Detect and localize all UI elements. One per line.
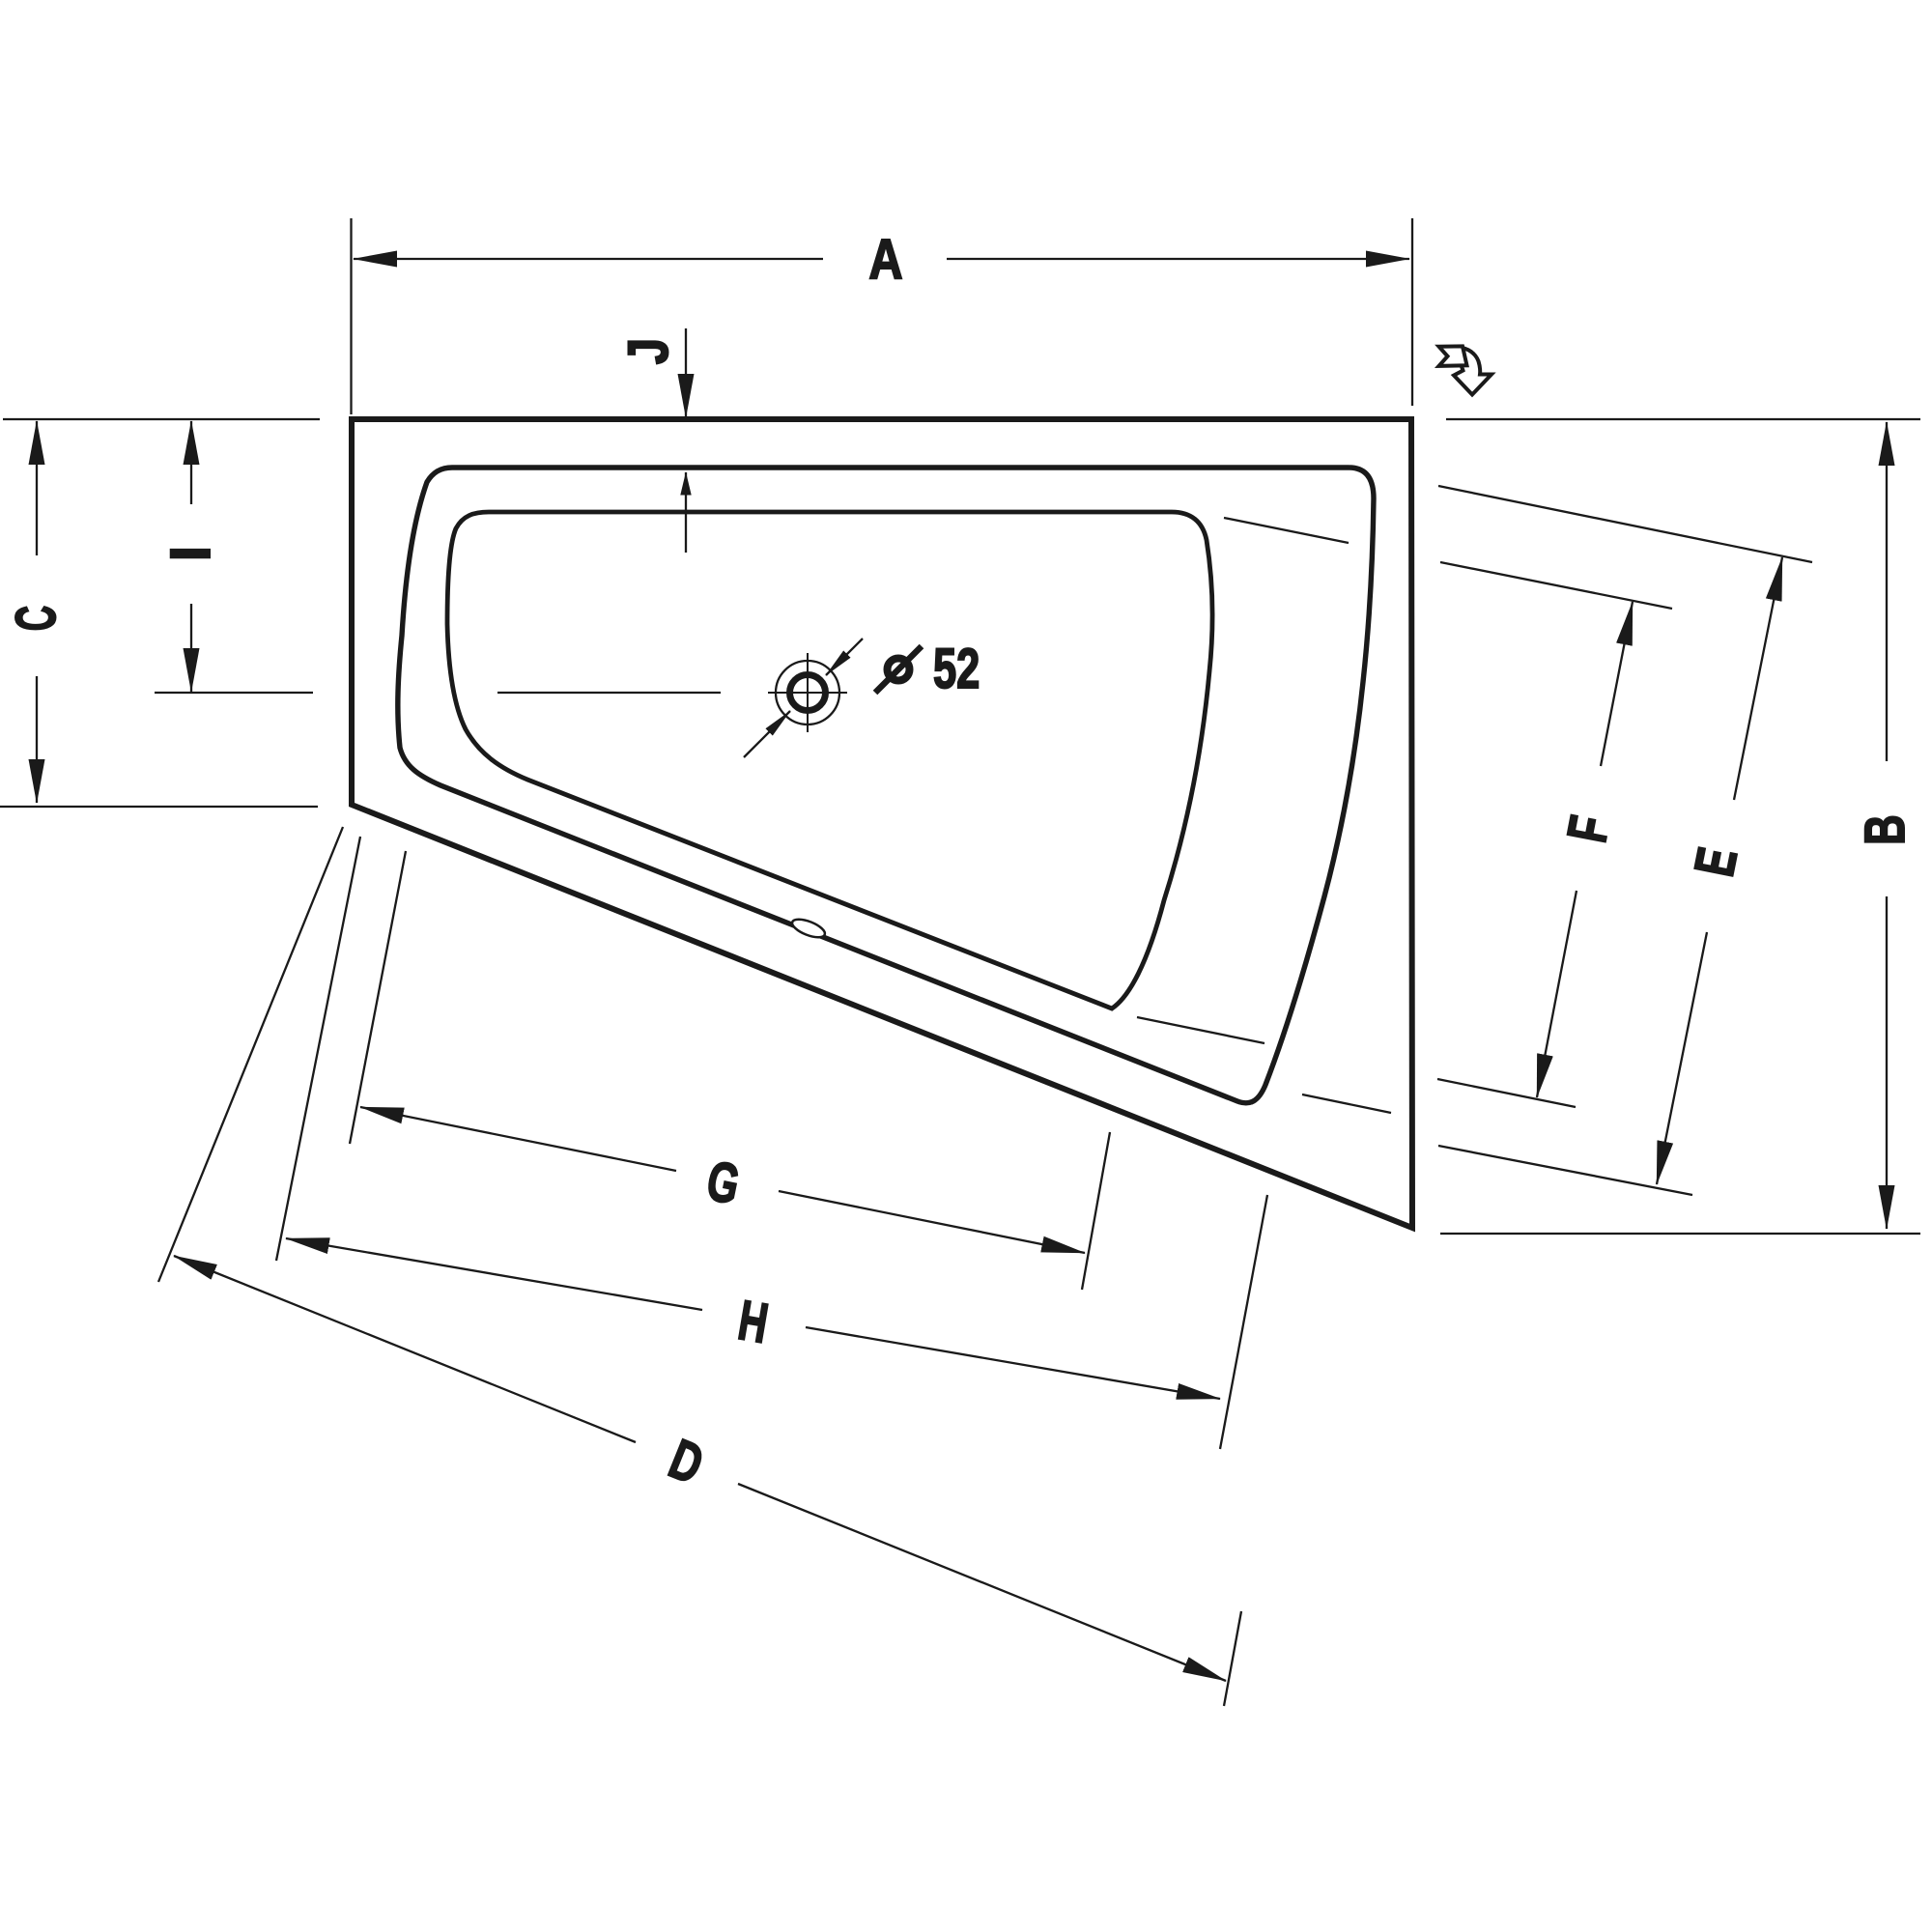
svg-text:E: E bbox=[1682, 842, 1749, 881]
svg-text:I: I bbox=[159, 546, 222, 561]
svg-text:D: D bbox=[661, 1427, 712, 1496]
svg-text:52: 52 bbox=[933, 638, 980, 699]
svg-text:G: G bbox=[702, 1148, 745, 1216]
svg-text:F: F bbox=[1554, 810, 1621, 846]
svg-text:C: C bbox=[6, 606, 69, 631]
svg-text:H: H bbox=[734, 1289, 773, 1355]
svg-text:B: B bbox=[1854, 814, 1916, 844]
svg-text:A: A bbox=[868, 230, 902, 292]
svg-text:J: J bbox=[617, 338, 680, 364]
